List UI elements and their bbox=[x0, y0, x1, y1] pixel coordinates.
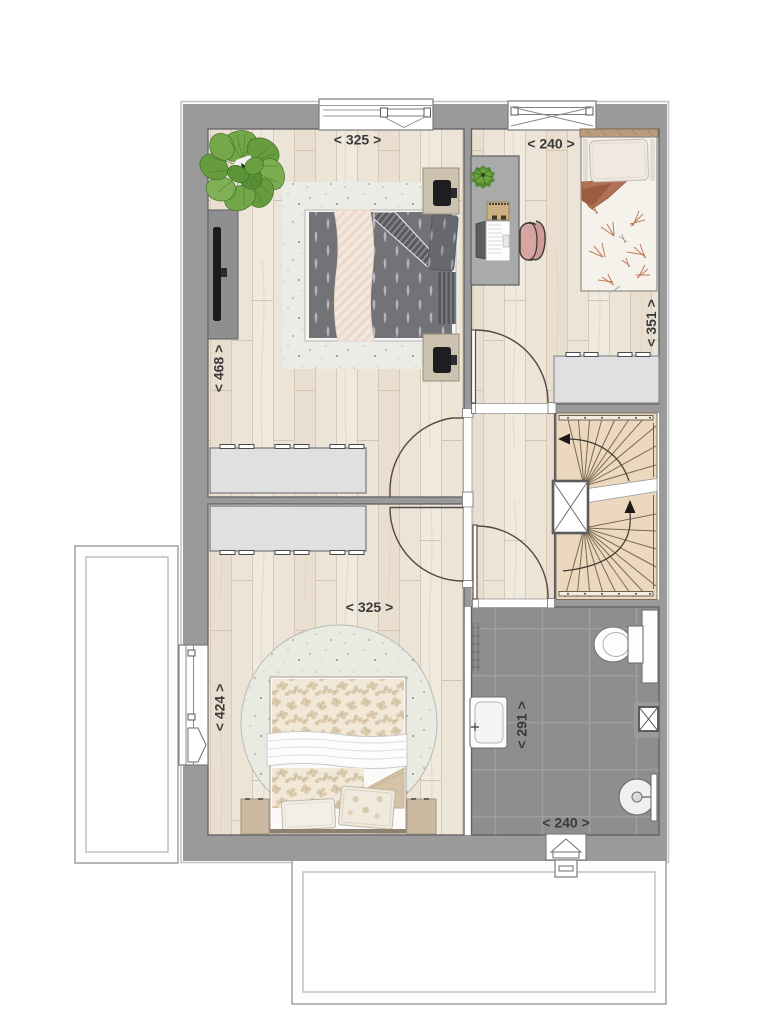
svg-text:< 325 >: < 325 > bbox=[334, 132, 382, 148]
svg-text:< 468 >: < 468 > bbox=[211, 345, 227, 393]
svg-text:< 424 >: < 424 > bbox=[212, 684, 228, 732]
svg-text:< 351 >: < 351 > bbox=[643, 299, 659, 347]
svg-text:< 240 >: < 240 > bbox=[527, 136, 575, 152]
svg-text:< 325 >: < 325 > bbox=[346, 599, 394, 615]
svg-text:< 240 >: < 240 > bbox=[542, 815, 590, 831]
svg-text:< 291 >: < 291 > bbox=[514, 701, 530, 749]
